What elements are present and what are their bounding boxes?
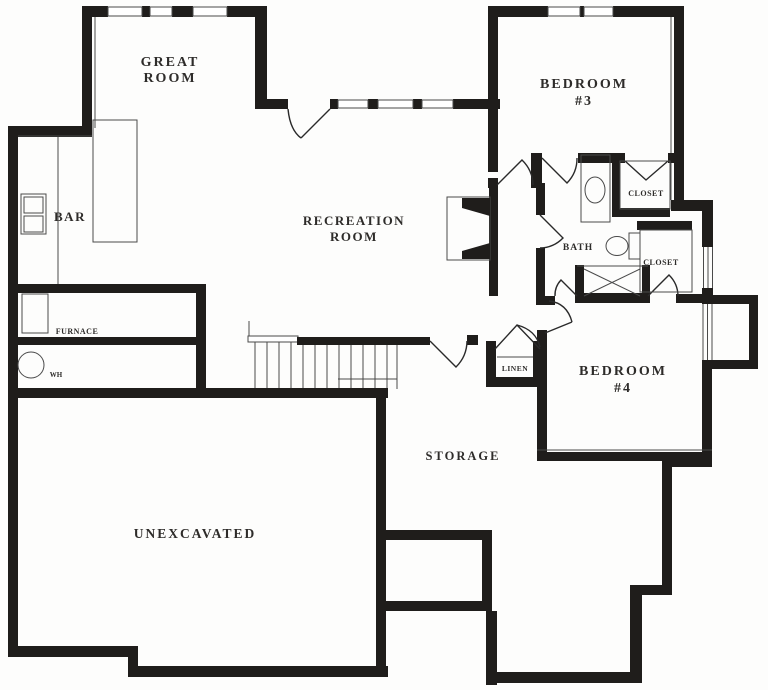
wall-segment	[702, 288, 713, 299]
wall-segment	[676, 294, 704, 303]
wall-segment	[18, 337, 198, 345]
window-bay	[703, 304, 712, 360]
wall-segment	[8, 126, 92, 137]
label-great-room: ROOM	[143, 71, 196, 86]
wall-segment	[368, 99, 378, 109]
wall-segment	[413, 99, 422, 109]
wall-segment	[537, 452, 712, 461]
label-closet-bedroom3: CLOSET	[628, 189, 664, 198]
wall-segment	[613, 6, 674, 17]
label-bar: BAR	[54, 209, 86, 224]
label-water-heater: WH	[50, 371, 63, 379]
wall-segment	[376, 530, 492, 540]
shower-pan-x	[584, 269, 640, 296]
stair-landing-edge	[248, 336, 298, 342]
wall-segment	[702, 208, 713, 247]
wall-segment	[8, 646, 138, 657]
bar-sink	[21, 194, 46, 234]
bar-sink-basin	[24, 216, 43, 232]
door-storage	[430, 341, 467, 367]
wall-segment	[612, 153, 620, 215]
window	[548, 7, 580, 16]
window-sidelight	[704, 247, 713, 288]
wall-segment	[330, 99, 338, 109]
label-bedroom-4: BEDROOM	[579, 364, 667, 379]
label-bedroom-3: #3	[575, 94, 593, 109]
door-bath-south	[555, 280, 577, 296]
wall-segment	[297, 337, 430, 345]
furnace-unit	[22, 294, 48, 333]
wall-segment	[702, 366, 712, 461]
window	[422, 100, 453, 108]
bar-island-counter	[93, 120, 137, 242]
floor-plan-canvas: GREAT ROOM RECREATION ROOM BEDROOM #3 BE…	[0, 0, 768, 690]
label-unexcavated: UNEXCAVATED	[134, 526, 257, 541]
label-bedroom-4: #4	[614, 381, 632, 396]
wall-segment	[486, 672, 642, 683]
sink	[585, 177, 605, 203]
window	[584, 7, 613, 16]
wall-segment	[482, 530, 492, 611]
wall-segment	[749, 295, 758, 369]
label-recreation-room: RECREATION	[303, 213, 405, 228]
toilet-bowl	[606, 237, 628, 256]
door-bedroom3	[497, 160, 533, 185]
wall-segment	[142, 6, 150, 17]
window	[193, 7, 227, 16]
wall-segment	[490, 6, 548, 17]
window	[108, 7, 142, 16]
wall-segment	[18, 284, 198, 293]
label-great-room: GREAT	[141, 55, 200, 70]
wall-segment	[674, 6, 684, 211]
wall-segment	[128, 666, 388, 677]
wall-segment	[488, 178, 498, 188]
wall-segment	[467, 335, 478, 345]
door-bedroom4-angled	[545, 301, 572, 333]
label-bath: BATH	[563, 243, 593, 253]
water-heater-tank	[18, 352, 44, 378]
label-closet-bedroom4: CLOSET	[643, 258, 679, 267]
fireplace-mass	[462, 198, 490, 216]
wall-segment	[172, 6, 193, 17]
label-recreation-room: ROOM	[330, 229, 378, 244]
label-storage: STORAGE	[426, 449, 501, 463]
label-bedroom-3: BEDROOM	[540, 77, 628, 92]
window	[378, 100, 413, 108]
door-closet-bedroom4	[648, 275, 678, 296]
wall-segment	[637, 293, 648, 303]
bar-sink-basin	[24, 197, 43, 213]
floor-plan: GREAT ROOM RECREATION ROOM BEDROOM #3 BE…	[0, 0, 768, 690]
window	[338, 100, 368, 108]
door-recreation-entry	[288, 109, 330, 138]
wall-segment	[255, 6, 267, 109]
wall-segment	[453, 99, 500, 109]
staircase	[248, 321, 397, 389]
toilet-tank	[629, 233, 640, 259]
wall-segment	[536, 296, 555, 305]
door-bifold-closet-bedroom3	[625, 161, 668, 180]
wall-segment	[662, 465, 672, 595]
window	[150, 7, 172, 16]
label-furnace: FURNACE	[56, 327, 99, 336]
door-hall-bath	[540, 215, 563, 248]
wall-segment	[536, 248, 545, 298]
wall-segment	[580, 6, 584, 17]
stair-treads	[255, 342, 397, 389]
door-bedroom3-bath	[542, 158, 577, 183]
wall-segment	[488, 6, 498, 172]
fireplace	[447, 197, 490, 260]
wall-segment	[637, 221, 692, 230]
fireplace-mass	[462, 243, 490, 259]
wall-segment	[536, 183, 545, 215]
bar-area	[18, 120, 137, 284]
closet-bedroom3-interior	[620, 161, 670, 209]
wall-segment	[630, 594, 642, 683]
wall-segment	[82, 6, 92, 132]
wall-segment	[376, 601, 488, 611]
label-linen: LINEN	[502, 364, 528, 373]
